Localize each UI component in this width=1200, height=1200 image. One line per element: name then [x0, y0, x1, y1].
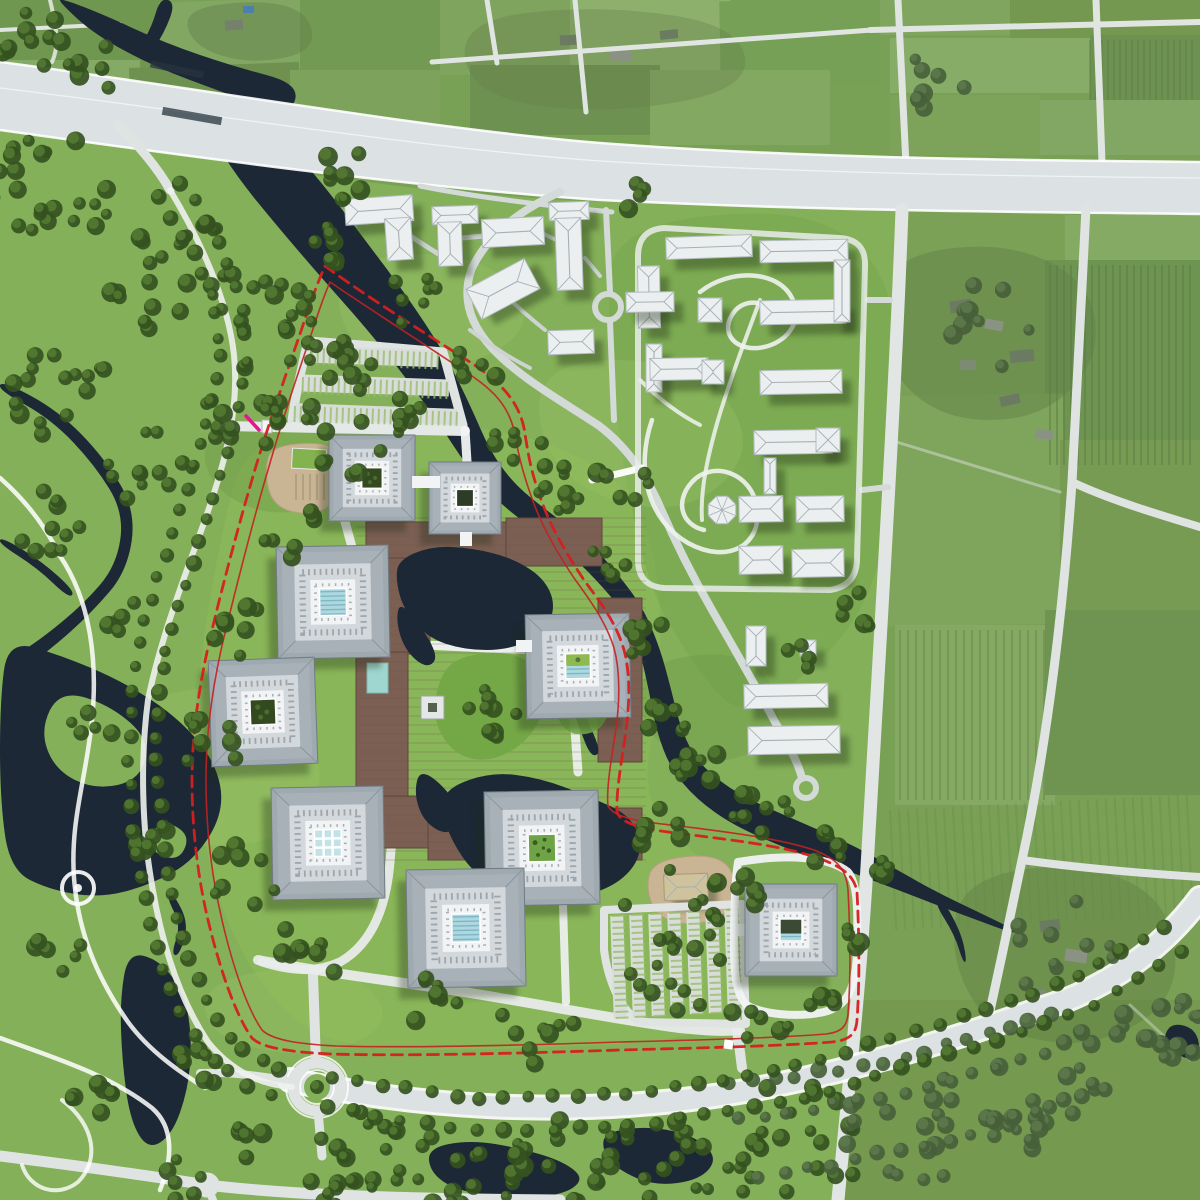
- field: [1040, 100, 1200, 155]
- field: [895, 625, 1055, 815]
- trad-building: [666, 234, 762, 270]
- compound-axis: [606, 210, 610, 292]
- trad-building: [481, 216, 554, 259]
- campus-path: [563, 905, 566, 1002]
- field: [883, 393, 1067, 626]
- courtyard-building: [199, 657, 318, 778]
- trad-building: [760, 369, 852, 406]
- village-house: [960, 360, 976, 370]
- octagonal-pavilion: [708, 496, 736, 524]
- trad-building: [748, 725, 850, 766]
- link-bridge: [460, 532, 472, 546]
- link-bridge: [412, 476, 440, 488]
- village-house: [1010, 349, 1035, 363]
- deck-pavilion-core: [428, 703, 437, 712]
- master-plan-canvas: [0, 0, 1200, 1200]
- roundabout-tree: [310, 1080, 324, 1094]
- deck: [506, 518, 602, 566]
- village-area: [465, 9, 746, 109]
- village-house: [1035, 429, 1054, 440]
- park-circle-center: [74, 884, 82, 892]
- link-bridge: [516, 640, 532, 652]
- boundary-gap-marker: [723, 1039, 733, 1049]
- courtyard-building-split-court: [516, 613, 631, 730]
- trad-building: [555, 217, 593, 301]
- courtyard-building: [320, 435, 415, 532]
- village-house-blue-roof: [243, 6, 254, 13]
- courtyard-building-glass-atrium: [397, 868, 526, 999]
- village-house: [225, 19, 244, 30]
- roundabout-spoke-north: [313, 975, 316, 1063]
- west-entrance-road: [225, 426, 465, 431]
- field: [1045, 610, 1200, 795]
- site-plan-rendering: [0, 0, 1200, 1200]
- village-house: [660, 29, 679, 40]
- trad-building: [744, 683, 838, 720]
- compound-axis: [610, 321, 614, 420]
- courtyard-building-skylight-grid: [262, 786, 385, 911]
- compound-stub: [862, 487, 888, 490]
